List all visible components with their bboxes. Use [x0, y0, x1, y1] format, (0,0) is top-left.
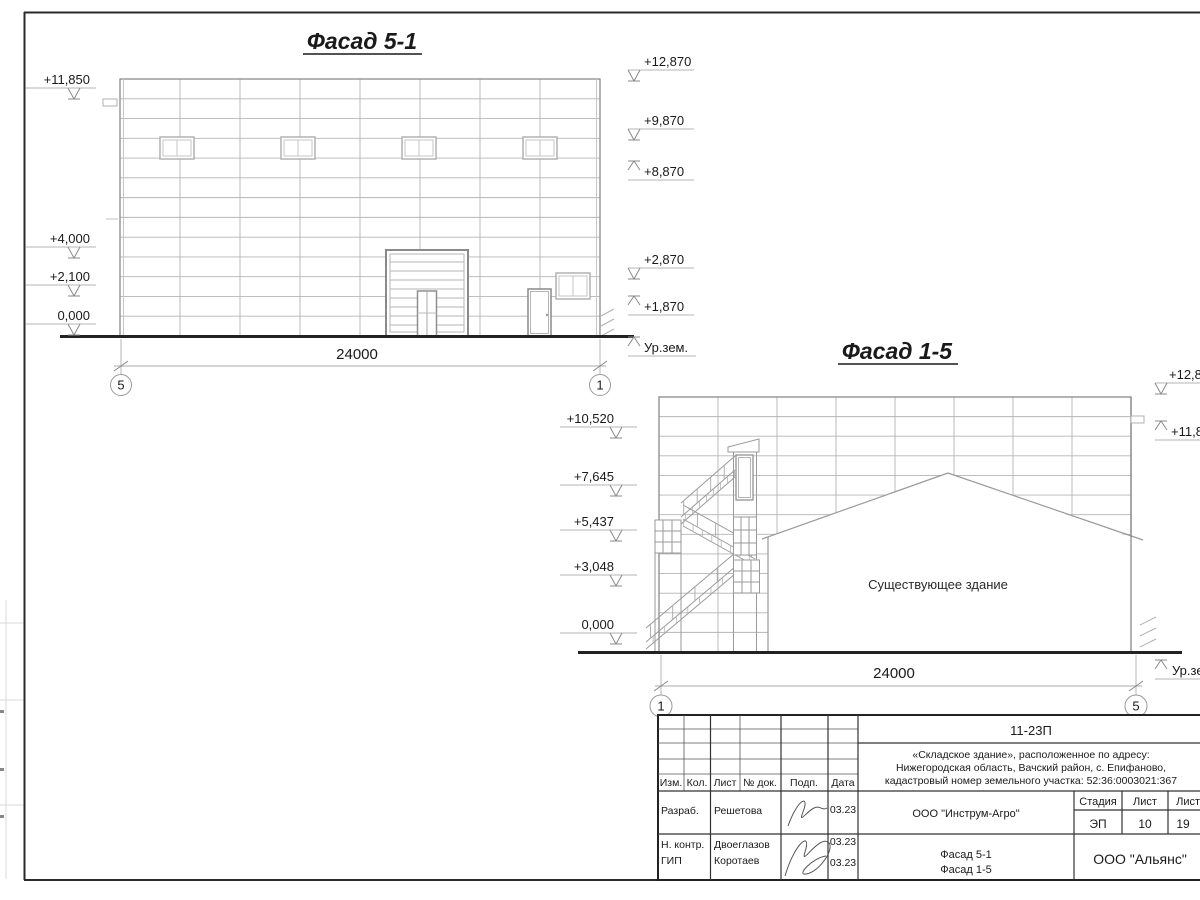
- facade-drawing-canvas: 24000 5 1 Фасад 5-1 Существующее здание: [0, 0, 1200, 900]
- level-arrow-icon: [634, 70, 640, 81]
- client-organization: ООО "Инструм-Агро": [912, 808, 1019, 820]
- facade-1-5-title: Фасад 1-5: [842, 338, 953, 364]
- date-gip: 03.23: [830, 857, 856, 869]
- adjacent-sheet-mark: [0, 815, 4, 818]
- ground-hatching: [601, 309, 614, 336]
- date-developer: 03.23: [830, 804, 856, 816]
- level-arrow-icon: [628, 161, 634, 170]
- level-arrow-icon: [1155, 421, 1161, 430]
- level-marker-0000: 0,000: [581, 617, 614, 632]
- facade-1-5: Существующее здание: [578, 338, 1182, 717]
- facade-5-1-title: Фасад 5-1: [307, 28, 417, 54]
- level-marker-3048: +3,048: [574, 559, 614, 574]
- axis-label: 5: [117, 378, 124, 393]
- level-arrow-icon: [1161, 383, 1167, 394]
- level-arrow-icon: [74, 88, 80, 99]
- level-arrow-icon: [610, 485, 616, 496]
- level-arrow-icon: [628, 296, 634, 305]
- stair-railing: [681, 456, 735, 503]
- stair-platform-rail: [655, 520, 681, 553]
- level-arrow-icon: [616, 427, 622, 438]
- dimension-value: 24000: [873, 665, 915, 682]
- ground-level-label: Ур.зем.: [1172, 663, 1200, 678]
- sectional-gate: [386, 250, 468, 336]
- level-marker-2870: +2,870: [644, 252, 684, 267]
- level-marker-12870: +12,870: [1169, 367, 1200, 382]
- dimension-24000: 24000: [654, 655, 1143, 695]
- stair-stringer: [681, 470, 735, 517]
- level-arrow-icon: [610, 633, 616, 644]
- level-marker-11850: +11,850: [44, 72, 90, 87]
- level-marker-8870: +8,870: [644, 164, 684, 179]
- wall-protrusion: [103, 99, 117, 106]
- role-gip: ГИП: [661, 855, 682, 867]
- sheets-header: Листов: [1176, 796, 1200, 808]
- level-arrow-icon: [1161, 421, 1167, 430]
- level-marker-5437: +5,437: [574, 514, 614, 529]
- level-arrow-icon: [1155, 383, 1161, 394]
- axis-label: 1: [596, 378, 603, 393]
- level-arrow-icon: [616, 485, 622, 496]
- ground-hatching: [1140, 617, 1156, 647]
- sheet-name-line1: Фасад 5-1: [940, 849, 991, 861]
- level-marker-1870: +1,870: [644, 299, 684, 314]
- facade-5-1-windows: [160, 137, 557, 159]
- stage-value: ЭП: [1089, 817, 1106, 831]
- level-arrow-icon: [610, 575, 616, 586]
- level-arrow-icon: [634, 337, 640, 346]
- stair-lower-rail: [734, 560, 760, 593]
- axis-label: 5: [1132, 699, 1139, 714]
- left-margin-marks: [0, 710, 4, 818]
- existing-building-label: Существующее здание: [868, 577, 1008, 592]
- external-staircase: [646, 439, 760, 651]
- stage-header: Стадия: [1079, 796, 1117, 808]
- level-arrow-icon: [1161, 660, 1167, 669]
- design-organization: ООО "Альянс": [1093, 851, 1187, 867]
- project-description-line3: кадастровый номер земельного участка: 52…: [885, 775, 1177, 787]
- level-arrow-icon: [74, 285, 80, 296]
- col-header-list: Лист: [714, 777, 737, 789]
- level-arrow-icon: [74, 324, 80, 335]
- level-arrow-icon: [610, 427, 616, 438]
- project-description-line2: Нижегородская область, Вачский район, с.…: [896, 762, 1166, 774]
- axis-bubbles: 5 1: [111, 375, 611, 396]
- level-marker-7645: +7,645: [574, 469, 614, 484]
- stair-canopy: [728, 439, 759, 452]
- role-norm-control: Н. контр.: [661, 839, 704, 851]
- name-gip: Коротаев: [714, 855, 760, 867]
- level-arrow-icon: [68, 285, 74, 296]
- level-arrow-icon: [634, 129, 640, 140]
- window: [160, 137, 194, 159]
- level-arrow-icon: [74, 247, 80, 258]
- level-arrow-icon: [68, 88, 74, 99]
- level-arrow-icon: [628, 268, 634, 279]
- level-marker-12870: +12,870: [644, 54, 691, 69]
- level-arrow-icon: [628, 129, 634, 140]
- col-header-data: Дата: [831, 777, 854, 789]
- level-marker-0000: 0,000: [57, 308, 90, 323]
- window: [402, 137, 436, 159]
- level-arrow-icon: [616, 530, 622, 541]
- small-window: [556, 273, 590, 299]
- ground-level-label: Ур.зем.: [644, 340, 688, 355]
- adjacent-sheet-mark: [0, 710, 4, 713]
- name-developer: Решетова: [714, 805, 762, 817]
- level-arrow-icon: [634, 268, 640, 279]
- level-arrow-icon: [628, 70, 634, 81]
- date-norm-control: 03.23: [830, 836, 856, 848]
- window: [523, 137, 557, 159]
- dimension-value: 24000: [336, 346, 378, 363]
- level-arrow-icon: [628, 337, 634, 346]
- adjacent-sheet-mark: [0, 768, 4, 771]
- door-handle: [546, 314, 548, 316]
- sheet-header: Лист: [1133, 796, 1157, 808]
- sheet-number: 10: [1138, 817, 1152, 831]
- sheet-name-line2: Фасад 1-5: [940, 864, 991, 876]
- level-marker-4000: +4,000: [50, 231, 90, 246]
- stair-stringer: [681, 477, 735, 524]
- level-marker-10520: +10,520: [567, 411, 614, 426]
- level-arrow-icon: [634, 161, 640, 170]
- level-marker-11850: +11,850: [1171, 424, 1200, 439]
- level-arrow-icon: [1155, 660, 1161, 669]
- level-arrow-icon: [610, 530, 616, 541]
- left-margin-strip: [0, 600, 24, 879]
- entrance-door: [528, 289, 551, 336]
- level-arrow-icon: [68, 247, 74, 258]
- col-header-podp: Подп.: [790, 777, 818, 789]
- level-marker-2100: +2,100: [50, 269, 90, 284]
- existing-building-mask: [768, 473, 1133, 651]
- level-arrow-icon: [616, 633, 622, 644]
- col-header-kol: Кол.: [687, 777, 708, 789]
- project-number: 11-23П: [1010, 723, 1052, 738]
- title-block: Изм. Кол. Лист № док. Подп. Дата Разраб.…: [658, 715, 1200, 880]
- facade-5-1: 24000 5 1 Фасад 5-1: [60, 28, 634, 396]
- axis-label: 1: [657, 699, 664, 714]
- drawing-sheet: 24000 5 1 Фасад 5-1 Существующее здание: [0, 0, 1200, 900]
- col-header-doc: № док.: [743, 777, 777, 789]
- axis-bubbles: 1 5: [650, 695, 1147, 717]
- wall-protrusion: [1131, 416, 1144, 423]
- level-arrow-icon: [634, 296, 640, 305]
- name-norm-control: Двоеглазов: [714, 839, 770, 851]
- window: [281, 137, 315, 159]
- role-developer: Разраб.: [661, 805, 699, 817]
- level-arrow-icon: [616, 575, 622, 586]
- dimension-24000: 24000: [114, 339, 607, 374]
- existing-building: Существующее здание: [762, 473, 1143, 651]
- sheets-total: 19: [1176, 817, 1190, 831]
- level-marker-9870: +9,870: [644, 113, 684, 128]
- level-arrow-icon: [68, 324, 74, 335]
- project-description-line1: «Складское здание», расположенное по адр…: [912, 749, 1149, 761]
- stair-landing-rail: [734, 517, 757, 555]
- col-header-izm: Изм.: [660, 777, 683, 789]
